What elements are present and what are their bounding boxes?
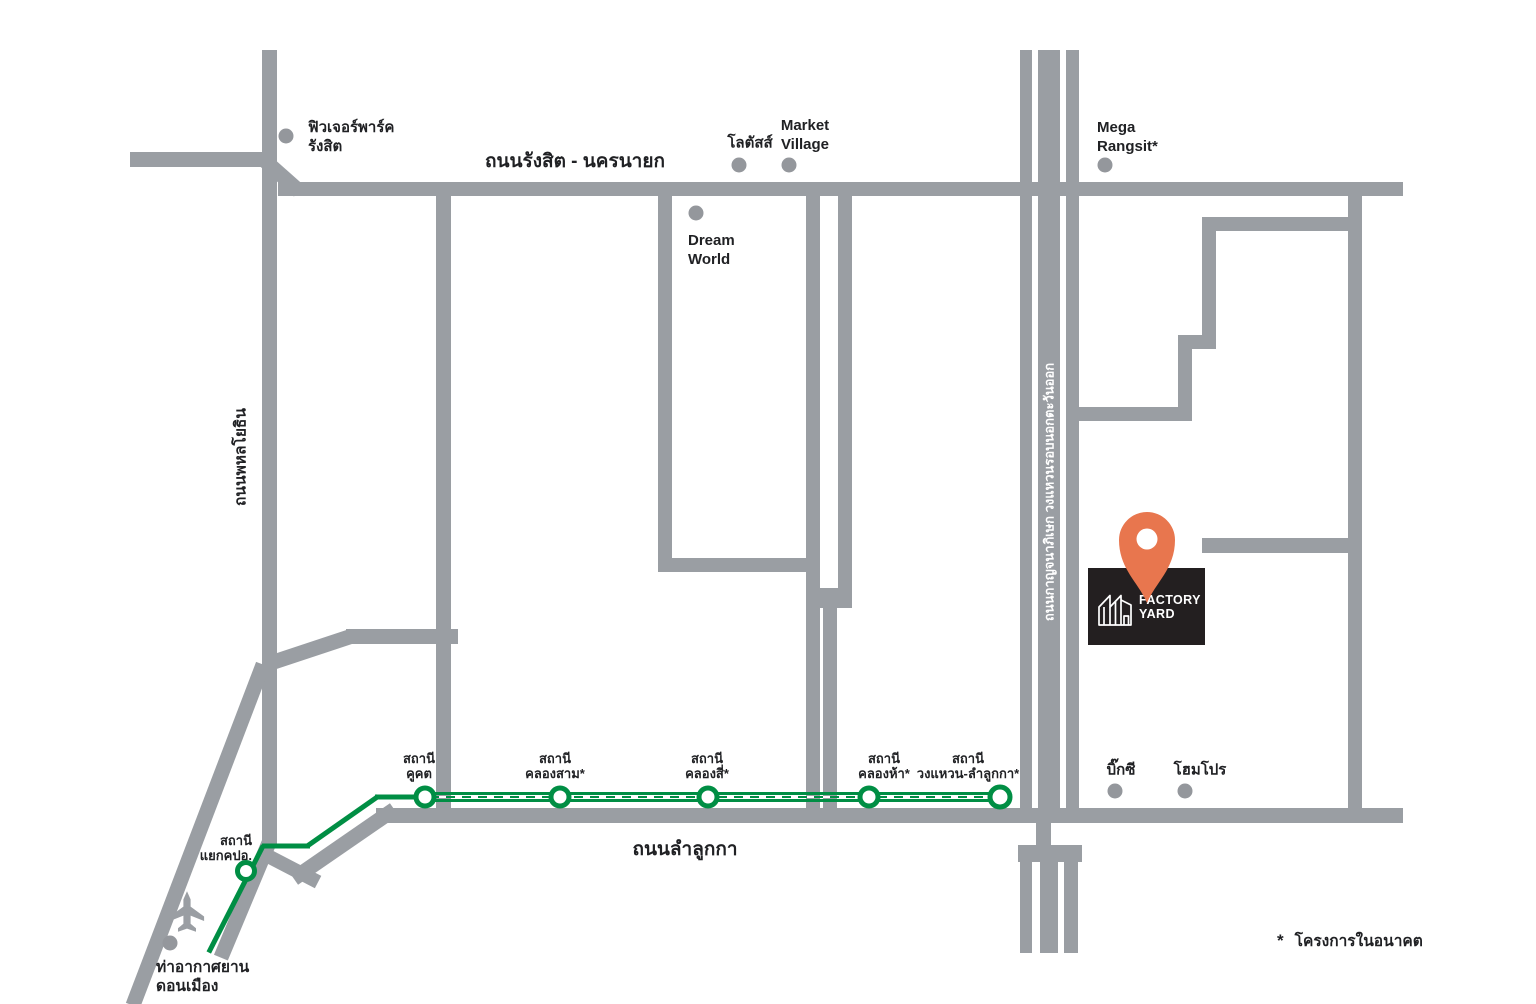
station-marker-khlong-si <box>697 786 720 809</box>
station-khlong-sam-line1: สถานี <box>525 751 585 766</box>
mega-rangsit-dot <box>1098 158 1113 173</box>
mega-rangsit-line1: Mega <box>1097 118 1158 137</box>
road-tollway-ramp-block <box>1018 845 1082 862</box>
station-khlong-ha-line1: สถานี <box>858 751 910 766</box>
market-village-line2: Village <box>781 135 829 154</box>
station-label-khlong-si: สถานี คลองสี่* <box>685 751 729 781</box>
station-label-khlong-sam: สถานี คลองสาม* <box>525 751 585 781</box>
station-khlong-sam-line2: คลองสาม* <box>525 766 585 781</box>
station-label-khukhot: สถานี คูคต <box>403 751 435 781</box>
road-tollway-south-3 <box>1064 862 1078 953</box>
station-label-khlong-ha: สถานี คลองห้า* <box>858 751 910 781</box>
airport-label: ท่าอากาศยาน ดอนเมือง <box>156 958 249 996</box>
dream-world-dot <box>689 206 704 221</box>
station-wongwaen-line2: วงแหวน-ลำลูกกา* <box>917 766 1019 781</box>
airplane-icon-svg <box>169 890 205 934</box>
lotus-label: โลตัสส์ <box>727 134 772 153</box>
road-dreamworld-left <box>658 196 672 572</box>
dream-world-line1: Dream <box>688 231 735 250</box>
location-map: ถนนรังสิต - นครนายก ถนนลำลูกกา ถนนพหลโยธ… <box>0 0 1536 1004</box>
location-pin-icon <box>1115 511 1179 604</box>
station-khlong-ha-line2: คลองห้า* <box>858 766 910 781</box>
big-c-label: บิ๊กซี <box>1107 761 1136 780</box>
airplane-icon <box>169 890 205 934</box>
road-west-stub <box>130 152 263 167</box>
airport-line2: ดอนเมือง <box>156 977 249 996</box>
road-tollway-south-2 <box>1040 862 1058 953</box>
mega-rangsit-line2: Rangsit* <box>1097 137 1158 156</box>
road-parallel-east-lower <box>823 600 837 808</box>
station-marker-wongwaen-lamlukka <box>988 785 1013 810</box>
station-label-wongwaen-lamlukka: สถานี วงแหวน-ลำลูกกา* <box>917 751 1019 781</box>
road-tollway-ramp-stem <box>1036 820 1051 847</box>
future-park-dot <box>279 129 294 144</box>
road-tollway-lane-3 <box>1066 50 1079 808</box>
big-c-dot <box>1108 784 1123 799</box>
logo-line2: YARD <box>1139 607 1175 621</box>
transit-line-segment <box>262 844 310 849</box>
road-mid-horizontal <box>346 629 458 644</box>
station-khlong-si-line1: สถานี <box>685 751 729 766</box>
station-yaek-kopoo-line1: สถานี <box>200 833 252 848</box>
road-right-h1 <box>1202 217 1362 231</box>
location-pin-svg <box>1115 511 1179 604</box>
future-park-line1: ฟิวเจอร์พาร์ค <box>308 118 394 137</box>
road-lamlukka <box>376 808 1403 823</box>
road-tollway-lane-1 <box>1020 50 1032 808</box>
station-marker-khlong-sam <box>549 786 572 809</box>
station-khukhot-line1: สถานี <box>403 751 435 766</box>
future-park-label: ฟิวเจอร์พาร์ค รังสิต <box>308 118 394 156</box>
road-label-lamlukka: ถนนลำลูกกา <box>632 834 737 864</box>
road-rangsit-nakhonnayok <box>278 182 1403 196</box>
station-wongwaen-line1: สถานี <box>917 751 1019 766</box>
road-dreamworld-bottom <box>658 558 820 572</box>
airport-line1: ท่าอากาศยาน <box>156 958 249 977</box>
legend-asterisk: * <box>1277 931 1284 951</box>
station-label-yaek-kopoo: สถานี แยกคปอ. <box>200 833 252 863</box>
dream-world-label: Dream World <box>688 231 735 269</box>
road-parallel-east-upper <box>838 196 852 600</box>
station-khlong-si-line2: คลองสี่* <box>685 766 729 781</box>
legend-text: โครงการในอนาคต <box>1295 928 1423 953</box>
road-right-h3 <box>1079 407 1192 421</box>
future-park-line2: รังสิต <box>308 137 394 156</box>
dream-world-line2: World <box>688 250 735 269</box>
station-marker-khukhot <box>414 786 437 809</box>
mega-rangsit-label: Mega Rangsit* <box>1097 118 1158 156</box>
road-tollway-south-1 <box>1020 862 1032 953</box>
lotus-dot <box>732 158 747 173</box>
station-marker-khlong-ha <box>858 786 881 809</box>
road-label-phahonyothin: ถนนพหลโยธิน <box>228 408 253 506</box>
homepro-label: โฮมโปร <box>1174 761 1227 780</box>
station-marker-yaek-kopoo <box>235 860 257 882</box>
airport-dot <box>163 936 178 951</box>
legend-future-project: * โครงการในอนาคต <box>1277 928 1423 953</box>
homepro-dot <box>1178 784 1193 799</box>
road-right-v1 <box>1348 196 1362 808</box>
road-mid-diagonal <box>265 629 354 671</box>
road-right-h2 <box>1202 538 1362 553</box>
road-label-rangsit-nakhonnayok: ถนนรังสิต - นครนายก <box>485 146 665 176</box>
market-village-line1: Market <box>781 116 829 135</box>
road-vertical-khlong2 <box>436 196 451 820</box>
road-label-kanchanaphisek: ถนนกาญจนาภิเษก วงแหวนรอบนอกตะวันออก <box>1039 363 1060 621</box>
station-khukhot-line2: คูคต <box>403 766 435 781</box>
market-village-label: Market Village <box>781 116 829 154</box>
road-parallel-west <box>806 196 820 808</box>
road-right-v2 <box>1202 217 1216 349</box>
market-village-dot <box>782 158 797 173</box>
